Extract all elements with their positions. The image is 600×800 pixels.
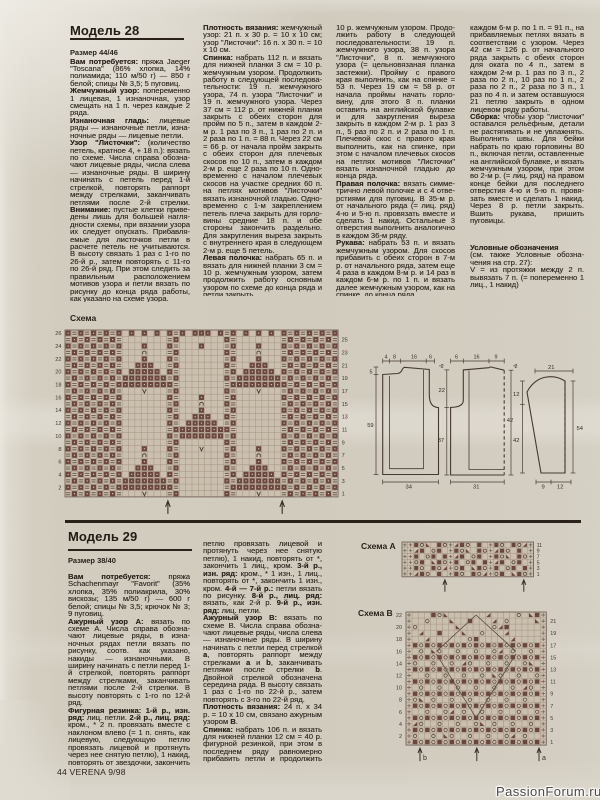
svg-text:5: 5 (342, 466, 345, 472)
svg-text:20: 20 (55, 370, 61, 376)
svg-text:16: 16 (55, 395, 61, 401)
svg-text:a: a (542, 755, 546, 762)
svg-text:18: 18 (396, 637, 402, 643)
svg-text:8: 8 (399, 698, 402, 704)
svg-text:25: 25 (342, 338, 348, 344)
svg-text:37: 37 (438, 438, 444, 444)
svg-text:21: 21 (548, 365, 554, 371)
svg-text:20: 20 (396, 625, 402, 631)
svg-text:23: 23 (342, 350, 348, 356)
svg-text:19: 19 (342, 376, 348, 382)
svg-text:21: 21 (342, 363, 348, 369)
svg-text:31: 31 (473, 485, 479, 491)
svg-text:12: 12 (396, 673, 402, 679)
svg-text:9: 9 (550, 692, 553, 698)
svg-text:17: 17 (550, 643, 556, 649)
svg-text:8: 8 (393, 355, 396, 361)
svg-text:14: 14 (55, 408, 61, 414)
svg-text:21: 21 (550, 619, 556, 625)
svg-text:3: 3 (342, 479, 345, 485)
svg-text:42: 42 (507, 418, 513, 424)
svg-text:6: 6 (429, 355, 432, 361)
svg-text:54: 54 (577, 426, 584, 432)
svg-text:7: 7 (537, 554, 540, 560)
svg-text:11: 11 (550, 680, 556, 686)
svg-text:24: 24 (55, 344, 61, 350)
svg-text:16: 16 (474, 355, 480, 361)
svg-text:5: 5 (537, 560, 540, 566)
svg-text:2: 2 (515, 364, 518, 370)
svg-text:b: b (423, 755, 427, 762)
svg-text:6: 6 (399, 710, 402, 716)
svg-text:9: 9 (342, 440, 345, 446)
svg-text:19: 19 (550, 631, 556, 637)
svg-text:4: 4 (399, 722, 402, 728)
svg-text:6: 6 (455, 355, 458, 361)
svg-text:18: 18 (55, 383, 61, 389)
svg-text:9: 9 (542, 485, 545, 491)
svg-text:2: 2 (441, 364, 444, 370)
svg-text:9: 9 (537, 549, 540, 555)
svg-text:26: 26 (55, 331, 61, 337)
svg-text:1: 1 (342, 492, 345, 498)
svg-text:13: 13 (550, 667, 556, 673)
svg-text:59: 59 (367, 423, 373, 429)
svg-text:12: 12 (557, 485, 563, 491)
svg-text:16: 16 (396, 649, 402, 655)
svg-text:5: 5 (370, 370, 373, 376)
svg-text:10: 10 (55, 434, 61, 440)
svg-text:7: 7 (342, 453, 345, 459)
svg-text:7: 7 (550, 704, 553, 710)
svg-text:15: 15 (342, 402, 348, 408)
svg-text:6: 6 (58, 460, 61, 466)
svg-text:4: 4 (58, 472, 61, 478)
svg-text:11: 11 (537, 543, 543, 549)
svg-text:5: 5 (550, 716, 553, 722)
svg-text:3: 3 (537, 566, 540, 572)
svg-text:3: 3 (550, 728, 553, 734)
svg-text:42: 42 (513, 438, 519, 444)
svg-text:22: 22 (396, 613, 402, 619)
svg-text:2: 2 (399, 734, 402, 740)
svg-text:4: 4 (385, 355, 388, 361)
svg-text:9: 9 (495, 355, 498, 361)
svg-text:13: 13 (342, 415, 348, 421)
svg-text:8: 8 (58, 447, 61, 453)
svg-text:1: 1 (537, 572, 540, 578)
svg-text:34: 34 (406, 485, 413, 491)
svg-text:10: 10 (396, 686, 402, 692)
svg-text:12: 12 (55, 421, 61, 427)
svg-text:2: 2 (58, 485, 61, 491)
svg-text:16: 16 (411, 355, 417, 361)
svg-text:1: 1 (550, 740, 553, 746)
svg-text:14: 14 (396, 661, 402, 667)
svg-text:11: 11 (342, 427, 348, 433)
svg-text:22: 22 (55, 357, 61, 363)
svg-text:15: 15 (550, 655, 556, 661)
svg-text:17: 17 (342, 389, 348, 395)
svg-text:22: 22 (439, 388, 445, 394)
svg-text:12: 12 (513, 392, 519, 398)
